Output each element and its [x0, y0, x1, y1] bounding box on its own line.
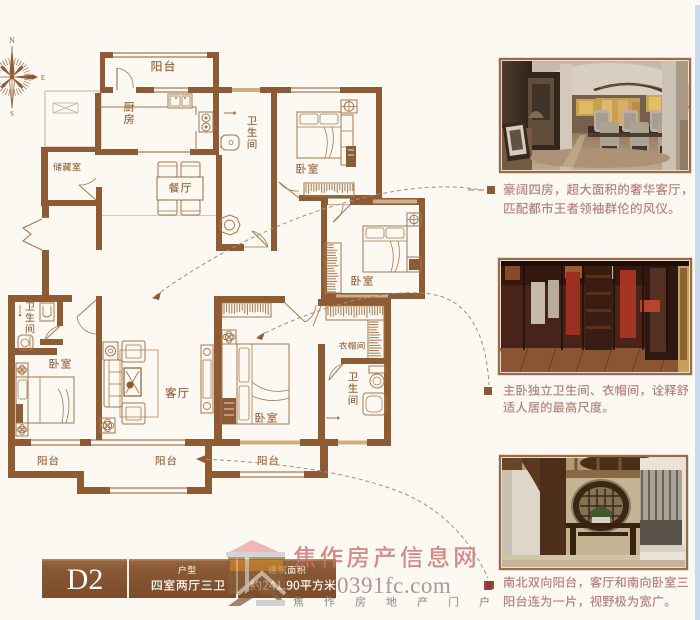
svg-text:N: N	[9, 36, 15, 45]
svg-text:E: E	[41, 74, 45, 82]
svg-text:0391fc.com: 0391fc.com	[337, 573, 451, 598]
svg-text:S: S	[10, 110, 14, 118]
svg-text:D2: D2	[67, 563, 104, 596]
